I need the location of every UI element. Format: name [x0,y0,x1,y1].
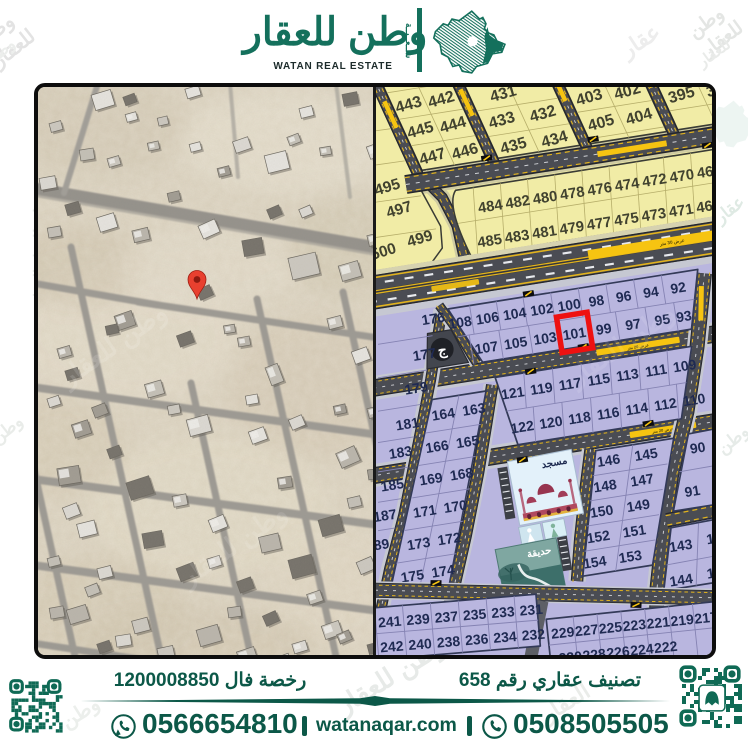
svg-text:240: 240 [408,635,433,653]
svg-text:223: 223 [622,616,647,634]
svg-text:236: 236 [464,630,489,648]
svg-text:98: 98 [587,292,605,310]
svg-text:242: 242 [380,637,405,655]
svg-text:217: 217 [693,608,712,626]
svg-text:469: 469 [695,197,712,217]
svg-text:238: 238 [436,633,461,651]
svg-text:225: 225 [598,618,623,636]
svg-text:230: 230 [558,648,583,655]
svg-text:226: 226 [606,643,631,655]
svg-text:239: 239 [406,610,431,628]
svg-text:233: 233 [491,603,516,621]
svg-text:224: 224 [629,640,654,655]
svg-text:232: 232 [521,626,546,644]
svg-text:92: 92 [669,279,687,297]
svg-text:94: 94 [642,283,660,301]
svg-text:221: 221 [646,613,671,631]
svg-text:235: 235 [462,605,487,623]
svg-text:237: 237 [434,608,459,626]
svg-text:222: 222 [653,638,678,655]
svg-text:468: 468 [696,163,712,183]
svg-text:219: 219 [670,611,695,629]
svg-text:241: 241 [377,613,402,631]
svg-text:228: 228 [582,645,607,655]
svg-text:90: 90 [689,438,707,456]
svg-text:229: 229 [550,623,575,641]
svg-text:227: 227 [574,621,599,639]
svg-text:231: 231 [519,601,544,619]
svg-text:234: 234 [493,628,518,646]
svg-text:111: 111 [644,361,668,380]
svg-text:96: 96 [615,287,633,305]
svg-text:91: 91 [683,482,701,500]
